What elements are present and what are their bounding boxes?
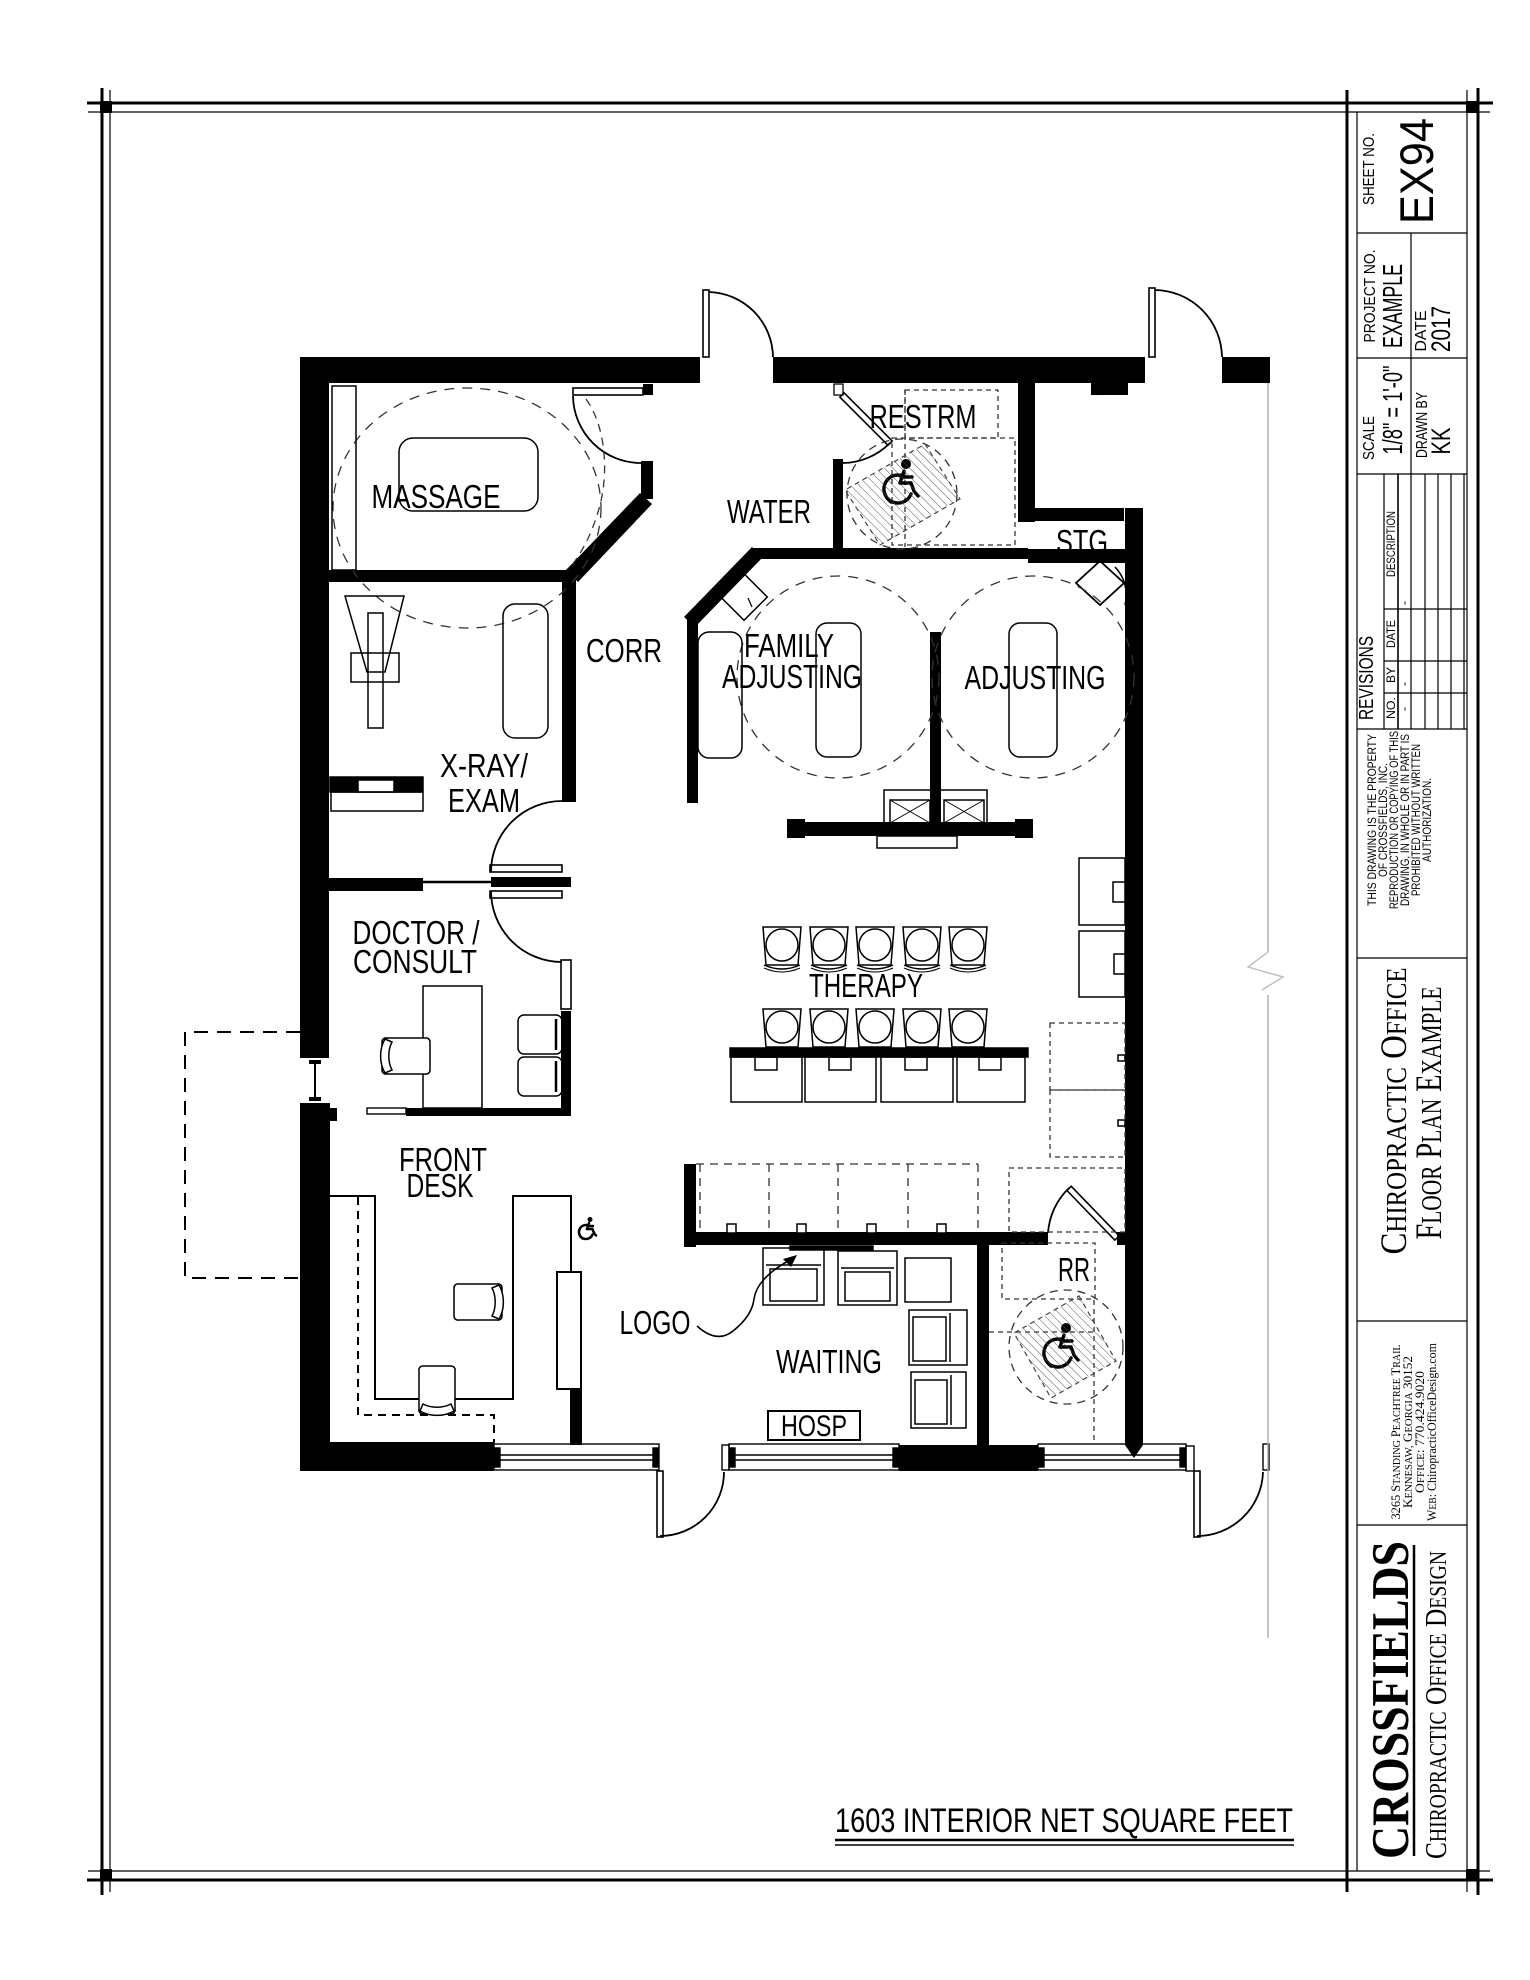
svg-text:WAITING: WAITING (776, 1343, 882, 1380)
svg-text:STG: STG (1056, 523, 1108, 560)
svg-text:DATE: DATE (1384, 620, 1398, 648)
svg-text:SCALE: SCALE (1361, 416, 1378, 460)
svg-text:ADJUSTING: ADJUSTING (965, 659, 1106, 696)
svg-text:CROSSFIELDS: CROSSFIELDS (1362, 1541, 1420, 1859)
svg-text:REVISIONS: REVISIONS (1356, 636, 1378, 720)
svg-text:EXAMPLE: EXAMPLE (1377, 264, 1408, 348)
svg-text:CORR: CORR (586, 632, 662, 669)
svg-text:RESTRM: RESTRM (870, 398, 977, 435)
svg-text:1603 INTERIOR NET SQUARE FEET: 1603 INTERIOR NET SQUARE FEET (835, 1802, 1293, 1840)
svg-text:DESK: DESK (407, 1167, 474, 1204)
svg-text:2017: 2017 (1426, 306, 1456, 352)
svg-text:ADJUSTING: ADJUSTING (722, 658, 862, 695)
svg-text:X-RAY/: X-RAY/ (440, 747, 529, 784)
svg-text:AUTHORIZATION.: AUTHORIZATION. (1422, 778, 1434, 862)
svg-text:WATER: WATER (727, 493, 811, 530)
svg-text:1/8" = 1'-0": 1/8" = 1'-0" (1377, 366, 1408, 455)
svg-text:MASSAGE: MASSAGE (372, 478, 501, 515)
svg-text:LOGO: LOGO (620, 1304, 691, 1341)
svg-text:WEB: ChiropracticOfficeDesign: WEB: ChiropracticOfficeDesign.com (1424, 1343, 1439, 1521)
svg-text:CONSULT: CONSULT (353, 943, 477, 980)
svg-text:EXAM: EXAM (448, 782, 520, 819)
svg-text:EX94: EX94 (1390, 118, 1443, 224)
svg-text:SHEET NO.: SHEET NO. (1361, 133, 1378, 205)
svg-text:-: - (1397, 601, 1411, 605)
svg-text:-: - (1397, 707, 1411, 711)
svg-text:NO.: NO. (1384, 697, 1398, 719)
svg-text:BY: BY (1384, 667, 1398, 683)
svg-text:DESCRIPTION: DESCRIPTION (1384, 511, 1398, 577)
svg-text:RR: RR (1058, 1251, 1090, 1288)
svg-text:KK: KK (1426, 428, 1456, 455)
svg-text:-: - (1397, 682, 1411, 686)
svg-text:HOSP: HOSP (781, 1410, 847, 1443)
svg-text:THERAPY: THERAPY (809, 967, 923, 1004)
